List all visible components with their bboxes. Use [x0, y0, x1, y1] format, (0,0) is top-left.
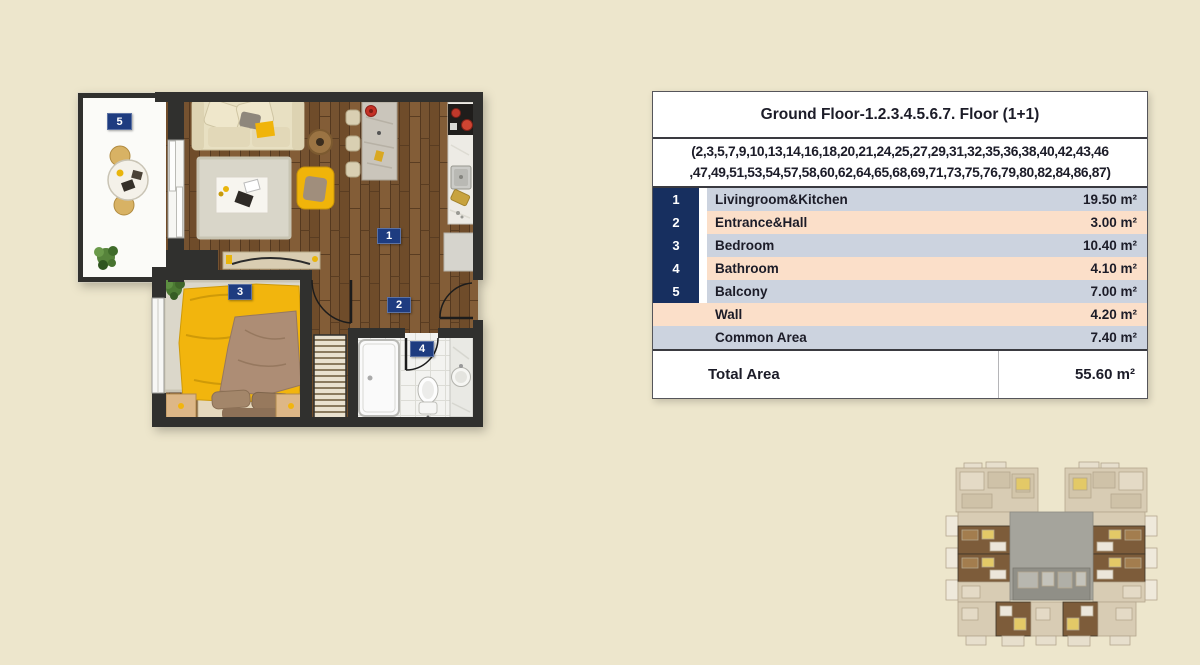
- row-area: 4.10 m²: [1090, 257, 1137, 280]
- row-label: Bathroom: [715, 257, 779, 280]
- siteplan-bottom-units: [958, 602, 1136, 646]
- row-area: 4.20 m²: [1090, 303, 1137, 326]
- bar-stool: [346, 110, 360, 125]
- row-number: 4: [653, 257, 699, 280]
- table-row-bedroom: 3 Bedroom 10.40 m²: [653, 234, 1147, 257]
- siteplan-top-left-units: [956, 462, 1038, 512]
- table-row-livingroom: 1 Livingroom&Kitchen 19.50 m²: [653, 188, 1147, 211]
- table-total-row: Total Area 55.60 m²: [653, 349, 1147, 398]
- table-row-balcony: 5 Balcony 7.00 m²: [653, 280, 1147, 303]
- kitchen-cabinet: [444, 233, 474, 271]
- row-area: 7.40 m²: [1090, 326, 1137, 349]
- table-unit-numbers: (2,3,5,7,9,10,13,14,16,18,20,21,24,25,27…: [653, 139, 1147, 188]
- tv-console: [223, 252, 320, 269]
- row-number: 5: [653, 280, 699, 303]
- wardrobe: [314, 335, 346, 419]
- unit-numbers-line1: (2,3,5,7,9,10,13,14,16,18,20,21,24,25,27…: [653, 141, 1147, 162]
- row-label: Common Area: [715, 326, 807, 349]
- room-label-4: 4: [410, 341, 434, 357]
- siteplan-left-wing: [946, 512, 1010, 602]
- bar-stool: [346, 136, 360, 151]
- area-table: Ground Floor-1.2.3.4.5.6.7. Floor (1+1) …: [652, 91, 1148, 399]
- room-label-1: 1: [377, 228, 401, 244]
- row-area: 19.50 m²: [1083, 188, 1137, 211]
- unit-numbers-line2: ,47,49,51,53,54,57,58,60,62,64,65,68,69,…: [653, 162, 1147, 183]
- total-area-label: Total Area: [653, 351, 998, 398]
- row-number: 1: [653, 188, 699, 211]
- table-row-common-area: Common Area 7.40 m²: [653, 326, 1147, 349]
- bed-pillow: [211, 390, 250, 410]
- page: 1 2 3 4 5 Ground Floor-1.2.3.4.5.6.7. Fl…: [0, 0, 1200, 665]
- shower: [359, 340, 399, 416]
- bar-stool: [346, 162, 360, 177]
- row-area: 3.00 m²: [1090, 211, 1137, 234]
- room-label-3: 3: [228, 284, 252, 300]
- row-number: 2: [653, 211, 699, 234]
- balcony-table: [108, 160, 148, 200]
- row-label: Livingroom&Kitchen: [715, 188, 848, 211]
- room-label-2: 2: [387, 297, 411, 313]
- building-site-plan-drawing: [928, 460, 1175, 656]
- sofa-yellow-throw: [255, 121, 275, 138]
- building-site-plan: [928, 460, 1175, 656]
- row-label: Bedroom: [715, 234, 774, 257]
- row-number: 3: [653, 234, 699, 257]
- table-title: Ground Floor-1.2.3.4.5.6.7. Floor (1+1): [653, 92, 1147, 139]
- siteplan-courtyard: [1010, 512, 1093, 600]
- apartment-floorplan: 1 2 3 4 5: [70, 85, 490, 430]
- row-label: Wall: [715, 303, 742, 326]
- room-label-5: 5: [107, 113, 132, 130]
- row-area: 7.00 m²: [1090, 280, 1137, 303]
- table-row-wall: Wall 4.20 m²: [653, 303, 1147, 326]
- row-number: [653, 326, 699, 349]
- row-area: 10.40 m²: [1083, 234, 1137, 257]
- table-row-entrance: 2 Entrance&Hall 3.00 m²: [653, 211, 1147, 234]
- table-row-bathroom: 4 Bathroom 4.10 m²: [653, 257, 1147, 280]
- bedroom-furniture: [163, 279, 306, 421]
- row-number: [653, 303, 699, 326]
- siteplan-right-wing: [1093, 512, 1157, 602]
- row-label: Balcony: [715, 280, 768, 303]
- apartment-floorplan-drawing: [70, 85, 490, 430]
- row-label: Entrance&Hall: [715, 211, 807, 234]
- stove: [448, 104, 474, 135]
- total-area-value: 55.60 m²: [998, 351, 1147, 398]
- siteplan-top-right-units: [1065, 462, 1147, 512]
